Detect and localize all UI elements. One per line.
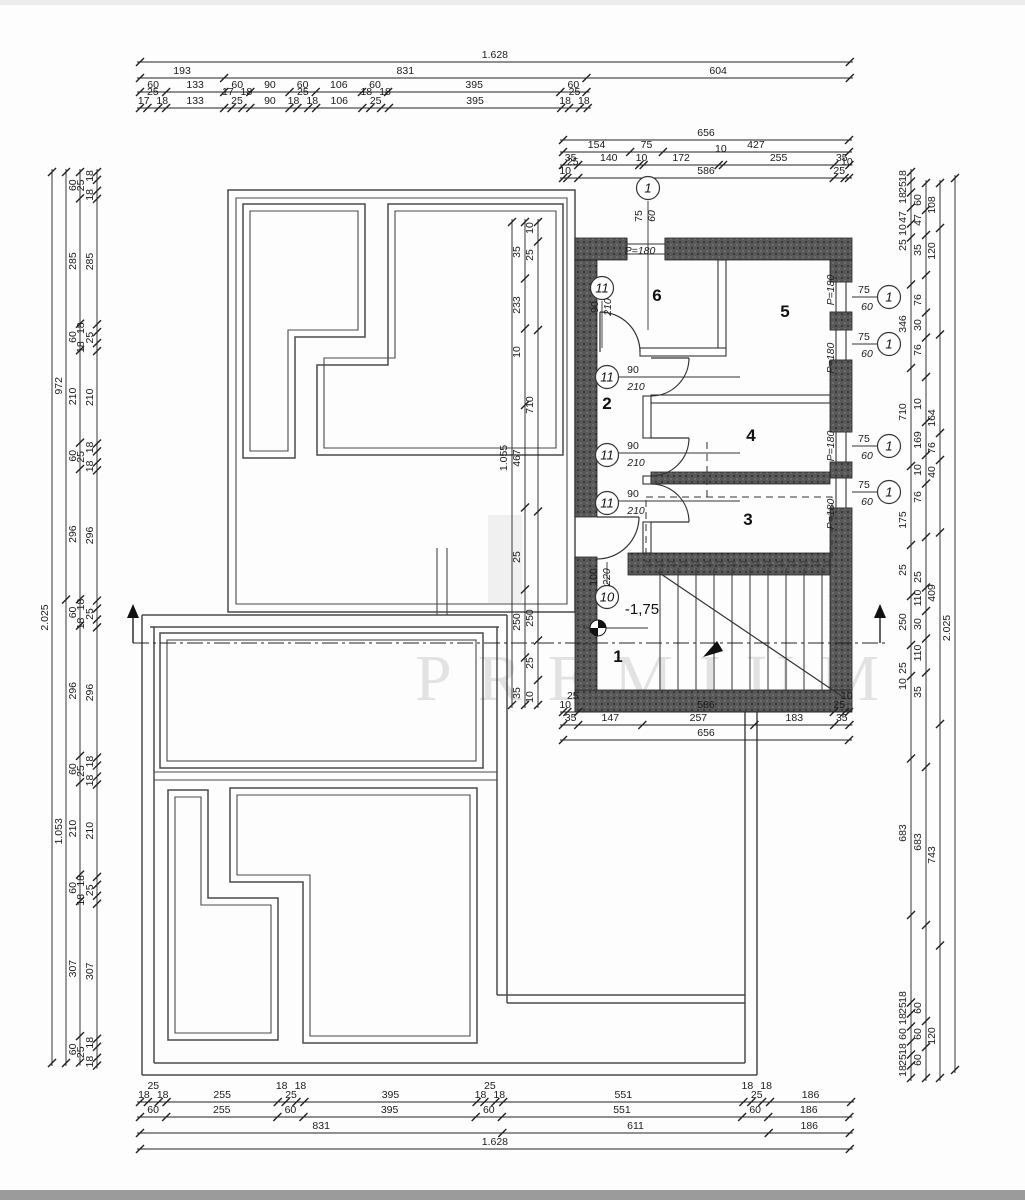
opening-dim-height: 210 [602, 298, 614, 317]
reference-number: 1 [885, 290, 892, 305]
dim-label: 76 [926, 442, 938, 454]
dim-label: 307 [67, 960, 79, 978]
dim-label: 106 [330, 79, 348, 91]
dim-label: 110 [912, 589, 924, 606]
dim-label: 76 [912, 344, 924, 356]
dim-label: 2.025 [941, 615, 953, 641]
opening-dim-height: 210 [626, 457, 645, 469]
dim-label: 35 [912, 244, 924, 256]
dim-label: 35 [912, 686, 924, 698]
reference-number: 10 [600, 590, 615, 605]
dim-label: 710 [897, 403, 909, 421]
dim-label: 683 [912, 833, 924, 851]
dim-label: 60 [912, 194, 924, 206]
opening-dim-width: 90 [627, 440, 639, 452]
dim-label: 25 [897, 662, 909, 674]
dim-label: 255 [213, 1104, 231, 1116]
opening-dim-width: 75 [633, 210, 645, 222]
dim-label: 2.025 [39, 604, 51, 630]
dim-label: 193 [173, 65, 191, 77]
opening-dim-height: 60 [861, 496, 873, 508]
dim-label: 10 [511, 346, 523, 358]
level-marker [590, 620, 606, 636]
dim-label: 90 [264, 79, 276, 91]
dim-label: 18 [306, 95, 318, 107]
dim-label: 76 [912, 491, 924, 503]
parapet-label: P=180 [825, 343, 837, 374]
reference-number: 11 [600, 370, 614, 385]
dim-label: 18 [897, 991, 909, 1003]
dim-label: 611 [627, 1120, 644, 1132]
dim-label: 47 [912, 214, 924, 226]
room-number: 1 [613, 647, 622, 666]
level-value: -1,75 [625, 601, 659, 618]
dim-label: 140 [600, 152, 618, 164]
dim-label: 395 [466, 95, 484, 107]
dim-label: 10 [715, 143, 727, 155]
opening-dim-height: 60 [861, 301, 873, 313]
section-arrow-left [127, 604, 139, 618]
dim-label: 831 [397, 65, 415, 77]
dim-label: 10 [897, 678, 909, 690]
reference-number: 11 [600, 496, 614, 511]
dim-label: 35 [836, 712, 848, 724]
dim-label: 296 [67, 682, 79, 700]
dim-label: 60 [912, 1054, 924, 1066]
dim-label: 18 [760, 1080, 772, 1092]
dim-label: 972 [53, 377, 65, 395]
dim-label: 186 [800, 1104, 818, 1116]
dim-label: 35 [511, 246, 523, 258]
dim-label: 285 [67, 252, 79, 270]
dim-label: 395 [381, 1104, 399, 1116]
existing-building-outline [142, 190, 757, 1075]
reference-number: 11 [600, 448, 614, 463]
opening-dim-height: 60 [861, 348, 873, 360]
dim-label: 18 [897, 1043, 909, 1055]
dim-label: 586 [697, 699, 715, 711]
dim-label: 183 [786, 712, 804, 724]
dim-label: 76 [912, 294, 924, 306]
dim-label: 250 [524, 609, 536, 627]
dim-label: 25 [511, 551, 523, 563]
dim-label: 25 [897, 1054, 909, 1066]
dim-label: 147 [602, 712, 620, 724]
dim-label: 10 [636, 152, 648, 164]
dim-label: 307 [84, 962, 96, 980]
dim-label: 551 [615, 1089, 633, 1101]
dim-label: 60 [483, 1104, 495, 1116]
dim-label: 25 [897, 239, 909, 251]
opening-dim-width: 90 [627, 488, 639, 500]
door-room6 [600, 312, 640, 352]
door-room4 [651, 438, 689, 476]
dim-label: 90 [264, 95, 276, 107]
dim-label: 60 [912, 1028, 924, 1040]
dim-label: 18 [75, 617, 87, 629]
dim-label: 409 [926, 584, 938, 602]
dim-label: 60 [147, 1104, 159, 1116]
dim-label: 18 [156, 95, 168, 107]
dim-label: 10 [524, 691, 536, 703]
door-room3 [651, 484, 689, 522]
dim-label: 25 [912, 571, 924, 583]
dim-label: 250 [511, 613, 523, 631]
opening-dim-width: 75 [858, 433, 870, 445]
dim-label: 18 [897, 1013, 909, 1025]
interior-walls [640, 260, 830, 553]
dim-label: 154 [588, 139, 606, 151]
page-edge-top [0, 0, 1025, 5]
dim-label: 18 [84, 775, 96, 787]
dim-label: 427 [747, 139, 765, 151]
dim-label: 18 [379, 86, 391, 98]
dim-label: 18 [897, 1065, 909, 1077]
dim-label: 656 [697, 127, 715, 139]
dim-label: 106 [330, 95, 348, 107]
opening-dim-width: 90 [589, 301, 601, 313]
section-arrow-right [874, 604, 886, 618]
dim-label: 257 [690, 712, 708, 724]
dim-label: 10 [912, 464, 924, 476]
dim-label: 296 [84, 527, 96, 545]
dim-label: 25 [567, 156, 579, 168]
dim-label: 296 [84, 684, 96, 702]
dim-label: 467 [511, 449, 523, 467]
dim-label: 10 [912, 398, 924, 410]
dim-label: 60 [912, 1002, 924, 1014]
dim-label: 346 [897, 315, 909, 333]
parapet-label: P=180 [825, 499, 837, 530]
dim-label: 743 [926, 846, 938, 864]
dim-label: 1.055 [498, 445, 510, 471]
dim-label: 831 [312, 1120, 330, 1132]
parapet-label: P=180 [625, 245, 656, 257]
dim-label: 120 [926, 242, 938, 260]
dim-label: 133 [186, 79, 204, 91]
dim-label: 25 [897, 564, 909, 576]
dim-label: 656 [697, 727, 715, 739]
room-number: 6 [652, 286, 661, 305]
room-number: 3 [743, 510, 752, 529]
dim-label: 710 [524, 396, 536, 414]
dim-label: 18 [84, 1056, 96, 1068]
dim-label: 25 [897, 1002, 909, 1014]
dim-label: 255 [213, 1089, 231, 1101]
opening-dim-height: 210 [626, 505, 645, 517]
dim-label: 75 [641, 139, 653, 151]
dim-label: 255 [770, 152, 788, 164]
dim-label: 296 [67, 525, 79, 543]
dim-label: 18 [897, 170, 909, 182]
dim-label: 210 [67, 820, 79, 838]
dim-label: 175 [897, 511, 909, 529]
dim-label: 210 [84, 388, 96, 406]
dim-label: 30 [912, 618, 924, 630]
dim-label: 164 [926, 409, 938, 427]
dim-label: 10 [524, 222, 536, 234]
room-number: 5 [780, 302, 789, 321]
dim-label: 10 [841, 156, 853, 168]
dim-label: 395 [465, 79, 483, 91]
reference-number: 1 [885, 337, 892, 352]
dim-label: 40 [926, 466, 938, 478]
dim-label: 18 [493, 1089, 505, 1101]
dim-label: 18 [84, 460, 96, 472]
dim-label: 60 [897, 1028, 909, 1040]
dim-label: 18 [157, 1089, 169, 1101]
dim-label: 35 [565, 712, 577, 724]
dim-label: 1.628 [482, 49, 508, 61]
dim-label: 186 [802, 1089, 820, 1101]
dim-label: 18 [241, 86, 253, 98]
dim-label: 18 [84, 189, 96, 201]
dim-label: 169 [912, 431, 924, 449]
dim-label: 110 [912, 644, 924, 661]
reference-number: 1 [644, 181, 651, 196]
dim-label: 25 [897, 181, 909, 193]
opening-dim-width: 90 [627, 364, 639, 376]
reference-number: 1 [885, 439, 892, 454]
window-symbols [627, 238, 852, 508]
dim-label: 25 [524, 657, 536, 669]
floor-plan-drawing: PREMIUM [0, 0, 1025, 1200]
opening-dim-width: 75 [858, 479, 870, 491]
page-edge-bottom [0, 1190, 1025, 1200]
dim-label: 35 [511, 687, 523, 699]
dim-label: 60 [285, 1104, 297, 1116]
dim-label: 172 [672, 152, 690, 164]
dim-label: 586 [697, 165, 715, 177]
reference-number: 1 [885, 485, 892, 500]
opening-dim-width: 75 [858, 284, 870, 296]
parapet-label: P=180 [825, 431, 837, 462]
dim-label: 133 [186, 95, 204, 107]
dim-label: 604 [709, 65, 727, 77]
room-number: 2 [602, 394, 611, 413]
dim-label: 395 [382, 1089, 400, 1101]
opening-dim-width: 100 [588, 568, 600, 586]
dim-label: 18 [75, 894, 87, 906]
dim-label: 1.628 [482, 1136, 508, 1148]
opening-dim-width: 75 [858, 331, 870, 343]
opening-dim-height: 60 [646, 210, 658, 222]
dim-label: 108 [926, 196, 938, 214]
dim-label: 683 [897, 824, 909, 842]
opening-dim-height: 210 [626, 381, 645, 393]
dim-label: 60 [749, 1104, 761, 1116]
dim-label: 233 [511, 296, 523, 314]
dim-label: 250 [897, 613, 909, 631]
dim-label: 120 [926, 1027, 938, 1045]
reference-number: 11 [595, 281, 609, 296]
dim-label: 18 [75, 341, 87, 353]
dim-label: 10 [841, 690, 853, 702]
room-number: 4 [746, 426, 756, 445]
dim-label: 186 [800, 1120, 818, 1132]
floorplan-canvas: PREMIUM [0, 0, 1025, 1200]
opening-dim-height: 220 [601, 568, 613, 587]
dim-label: 18 [897, 192, 909, 204]
dim-label: 210 [67, 387, 79, 405]
dim-label: 1.053 [53, 818, 65, 844]
dim-label: 285 [84, 253, 96, 271]
dim-label: 10 [897, 224, 909, 236]
dim-label: 30 [912, 319, 924, 331]
dim-label: 25 [524, 249, 536, 261]
opening-dim-height: 60 [861, 450, 873, 462]
dim-label: 25 [567, 690, 579, 702]
dim-label: 210 [84, 822, 96, 840]
dim-label: 47 [897, 211, 909, 223]
dim-label: 18 [578, 95, 590, 107]
parapet-label: P=180 [825, 275, 837, 306]
dim-label: 551 [613, 1104, 631, 1116]
dim-label: 18 [295, 1080, 307, 1092]
